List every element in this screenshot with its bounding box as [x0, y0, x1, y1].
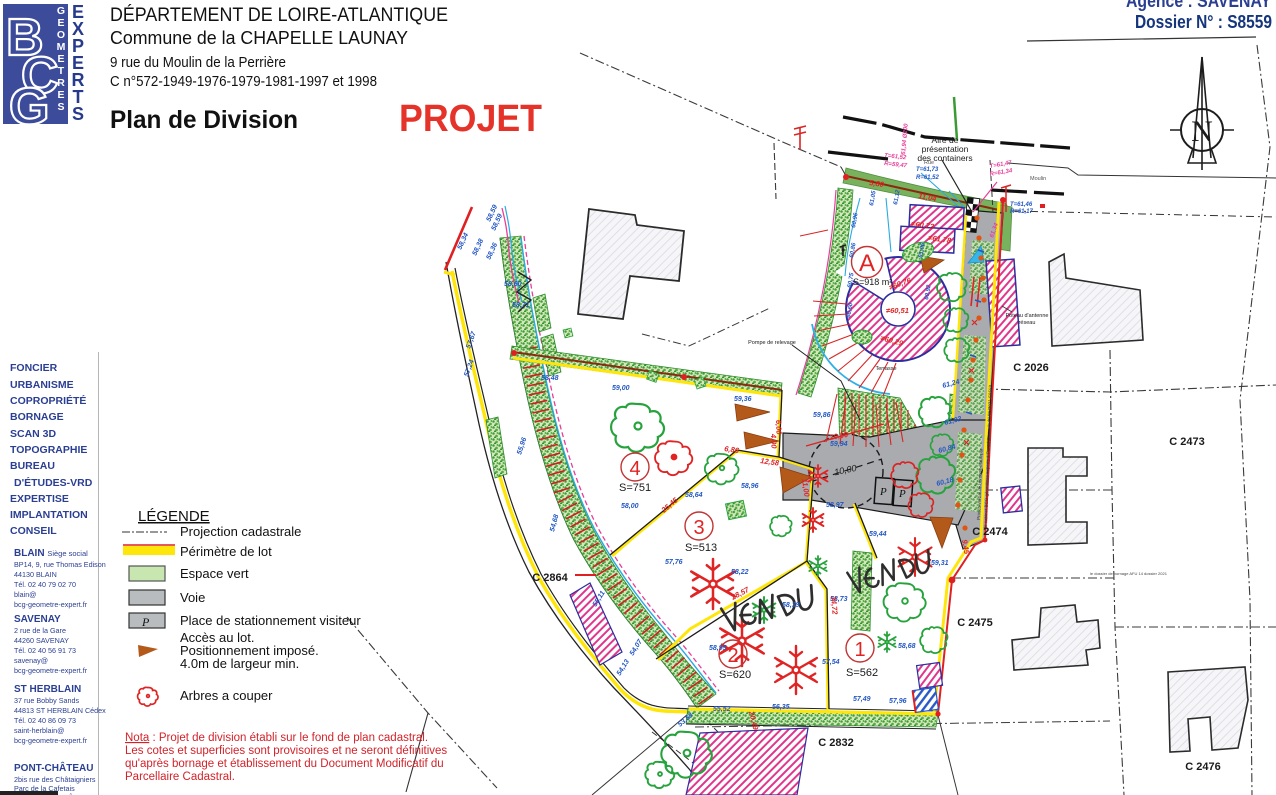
svg-text:S: S [57, 101, 64, 113]
svg-text:1: 1 [854, 639, 865, 661]
svg-text:C 2473: C 2473 [1169, 436, 1204, 448]
svg-text:S=918 m²: S=918 m² [853, 277, 892, 287]
svg-text:Les cotes et superficies sont: Les cotes et superficies sont provisoire… [125, 745, 447, 757]
svg-text:qu'après bornage et établissem: qu'après bornage et établissement du Doc… [125, 758, 444, 770]
svg-text:Dossier N° : S8559: Dossier N° : S8559 [1135, 11, 1272, 32]
svg-text:réseau: réseau [1019, 320, 1036, 326]
svg-text:S: S [72, 104, 84, 124]
svg-text:Place de stationnement visiteu: Place de stationnement visiteur [180, 613, 361, 628]
svg-text:blain@: blain@ [14, 590, 36, 599]
svg-text:2: 2 [727, 645, 738, 667]
svg-text:T=61,46: T=61,46 [1010, 202, 1033, 208]
svg-text:Pompe de relevage: Pompe de relevage [748, 340, 796, 346]
svg-text:EXPERTISE: EXPERTISE [10, 493, 69, 505]
svg-text:4,00: 4,00 [769, 433, 779, 450]
svg-text:COPROPRIÉTÉ: COPROPRIÉTÉ [10, 394, 86, 407]
svg-text:Tél. 02 40 56 91 73: Tél. 02 40 56 91 73 [14, 646, 76, 655]
svg-text:SCAN 3D: SCAN 3D [10, 428, 57, 440]
svg-text:PROJET: PROJET [399, 98, 542, 140]
svg-text:9 rue du Moulin de la Perrière: 9 rue du Moulin de la Perrière [110, 55, 286, 71]
svg-text:T=61,73: T=61,73 [916, 167, 939, 173]
svg-text:C 2475: C 2475 [957, 617, 992, 629]
svg-text:LÉGENDE: LÉGENDE [138, 508, 210, 525]
svg-text:Poteau d'antenne: Poteau d'antenne [1006, 313, 1049, 319]
svg-text:R=61,52: R=61,52 [916, 175, 940, 181]
svg-text:R: R [57, 77, 65, 89]
svg-text:Commune de la CHAPELLE LAUNAY: Commune de la CHAPELLE LAUNAY [110, 27, 408, 48]
svg-text:Moulin: Moulin [1030, 176, 1046, 182]
svg-text:58,22: 58,22 [731, 569, 749, 576]
svg-text:Nota : Projet de division étab: Nota : Projet de division établi sur le … [125, 732, 428, 744]
svg-text:Rue: Rue [924, 160, 934, 166]
svg-text:4: 4 [629, 458, 640, 480]
svg-text:P: P [898, 488, 906, 500]
svg-text:G: G [57, 5, 65, 17]
svg-text:M: M [57, 41, 66, 53]
svg-text:bcg-geometre-expert.fr: bcg-geometre-expert.fr [14, 666, 88, 675]
svg-text:55,52: 55,52 [713, 706, 731, 713]
svg-text:E: E [57, 17, 64, 29]
svg-text:BLAIN Siège social: BLAIN Siège social [14, 548, 88, 559]
svg-text:58,00: 58,00 [621, 503, 639, 510]
svg-text:44130 BLAIN: 44130 BLAIN [14, 570, 57, 579]
svg-text:TOPOGRAPHIE: TOPOGRAPHIE [10, 444, 87, 456]
svg-text:44260 SAVENAY: 44260 SAVENAY [14, 636, 69, 645]
svg-text:le dossier de bornage AFU 14 d: le dossier de bornage AFU 14 dossier 202… [1090, 571, 1168, 576]
svg-text:58,60: 58,60 [504, 281, 522, 288]
svg-text:PONT-CHÂTEAU: PONT-CHÂTEAU [14, 761, 93, 774]
svg-text:O: O [57, 29, 65, 41]
svg-text:C 2864: C 2864 [532, 572, 568, 584]
svg-text:59,86: 59,86 [813, 412, 831, 419]
svg-text:58,71: 58,71 [512, 302, 530, 309]
svg-text:2 rue de la Gare: 2 rue de la Gare [14, 626, 66, 635]
svg-text:ST HERBLAIN: ST HERBLAIN [14, 684, 81, 695]
svg-text:D'ÉTUDES-VRD: D'ÉTUDES-VRD [14, 476, 93, 489]
svg-text:BP14, 9, rue Thomas Edison: BP14, 9, rue Thomas Edison [14, 560, 106, 569]
svg-text:savenay@: savenay@ [14, 656, 48, 665]
svg-text:59,00: 59,00 [612, 385, 630, 392]
svg-text:BORNAGE: BORNAGE [10, 411, 64, 423]
svg-text:FONCIER: FONCIER [10, 362, 58, 374]
svg-text:C 2476: C 2476 [1185, 761, 1220, 773]
svg-text:bcg-geometre-expert.fr: bcg-geometre-expert.fr [14, 736, 88, 745]
svg-text:P: P [879, 486, 887, 498]
svg-text:Arbres a couper: Arbres a couper [180, 688, 273, 703]
svg-text:59,94: 59,94 [830, 441, 848, 448]
svg-text:57,54: 57,54 [822, 659, 840, 666]
svg-text:C 2832: C 2832 [818, 737, 853, 749]
svg-text:DÉPARTEMENT DE LOIRE-ATLANTIQU: DÉPARTEMENT DE LOIRE-ATLANTIQUE [110, 5, 448, 26]
svg-text:E: E [57, 89, 64, 101]
svg-text:56,35: 56,35 [772, 704, 790, 711]
svg-text:58,48: 58,48 [541, 375, 559, 382]
svg-text:Tél. 02 40 86 09 73: Tél. 02 40 86 09 73 [14, 716, 76, 725]
svg-text:59,36: 59,36 [734, 396, 752, 403]
svg-text:bcg-geometre-expert.fr: bcg-geometre-expert.fr [14, 600, 88, 609]
svg-text:Projection cadastrale: Projection cadastrale [180, 524, 301, 539]
svg-text:Parcellaire Cadastral.: Parcellaire Cadastral. [125, 771, 235, 783]
svg-text:Espace vert: Espace vert [180, 566, 249, 581]
svg-text:59,31: 59,31 [931, 560, 949, 567]
svg-text:S=751: S=751 [619, 482, 651, 494]
svg-text:S=562: S=562 [846, 667, 878, 679]
svg-text:T: T [58, 65, 65, 77]
svg-text:Terrasse: Terrasse [875, 366, 896, 372]
svg-text:N: N [1191, 115, 1213, 148]
svg-text:Plan de Division: Plan de Division [110, 106, 298, 134]
svg-text:C 2026: C 2026 [1013, 362, 1048, 374]
svg-text:saint-herblain@: saint-herblain@ [14, 726, 64, 735]
svg-text:Agence : SAVENAY: Agence : SAVENAY [1126, 0, 1272, 11]
svg-text:34,72: 34,72 [829, 595, 840, 615]
svg-text:BUREAU: BUREAU [10, 460, 55, 472]
svg-text:44813 ST HERBLAIN Cédex: 44813 ST HERBLAIN Cédex [14, 706, 106, 715]
svg-text:C n°572-1949-1976-1979-1981-19: C n°572-1949-1976-1979-1981-1997 et 1998 [110, 74, 377, 90]
svg-text:R=61,17: R=61,17 [1010, 209, 1034, 215]
svg-text:Tél. 02 40 79 02 70: Tél. 02 40 79 02 70 [14, 580, 76, 589]
svg-text:Voie: Voie [180, 590, 205, 605]
svg-text:Périmètre de lot: Périmètre de lot [180, 544, 272, 559]
svg-text:G: G [9, 78, 49, 136]
svg-text:2bis rue des Châtaigniers: 2bis rue des Châtaigniers [14, 775, 96, 784]
svg-text:58,97: 58,97 [826, 502, 845, 509]
svg-text:57,96: 57,96 [889, 698, 907, 705]
svg-text:58,39: 58,39 [782, 602, 800, 609]
svg-text:4.0m de largeur min.: 4.0m de largeur min. [180, 656, 299, 671]
svg-text:≠60,51: ≠60,51 [886, 306, 909, 315]
svg-text:37 rue Bobby Sands: 37 rue Bobby Sands [14, 696, 80, 705]
svg-text:59,44: 59,44 [869, 531, 887, 538]
svg-text:C 2474: C 2474 [972, 526, 1008, 538]
svg-text:57,76: 57,76 [665, 559, 683, 566]
svg-text:3: 3 [693, 517, 704, 539]
svg-text:URBANISME: URBANISME [10, 379, 74, 391]
svg-text:S=620: S=620 [719, 669, 751, 681]
svg-text:CONSEIL: CONSEIL [10, 525, 57, 537]
svg-text:57,49: 57,49 [853, 696, 871, 703]
svg-text:58,95: 58,95 [709, 645, 727, 652]
svg-text:58,96: 58,96 [741, 483, 759, 490]
svg-text:IMPLANTATION: IMPLANTATION [10, 509, 88, 521]
svg-text:58,68: 58,68 [898, 643, 916, 650]
svg-text:P: P [141, 615, 150, 629]
svg-text:S=513: S=513 [685, 542, 717, 554]
svg-text:E: E [57, 53, 64, 65]
svg-text:58,64: 58,64 [685, 492, 703, 499]
svg-text:A: A [859, 250, 875, 277]
svg-text:SAVENAY: SAVENAY [14, 614, 61, 625]
